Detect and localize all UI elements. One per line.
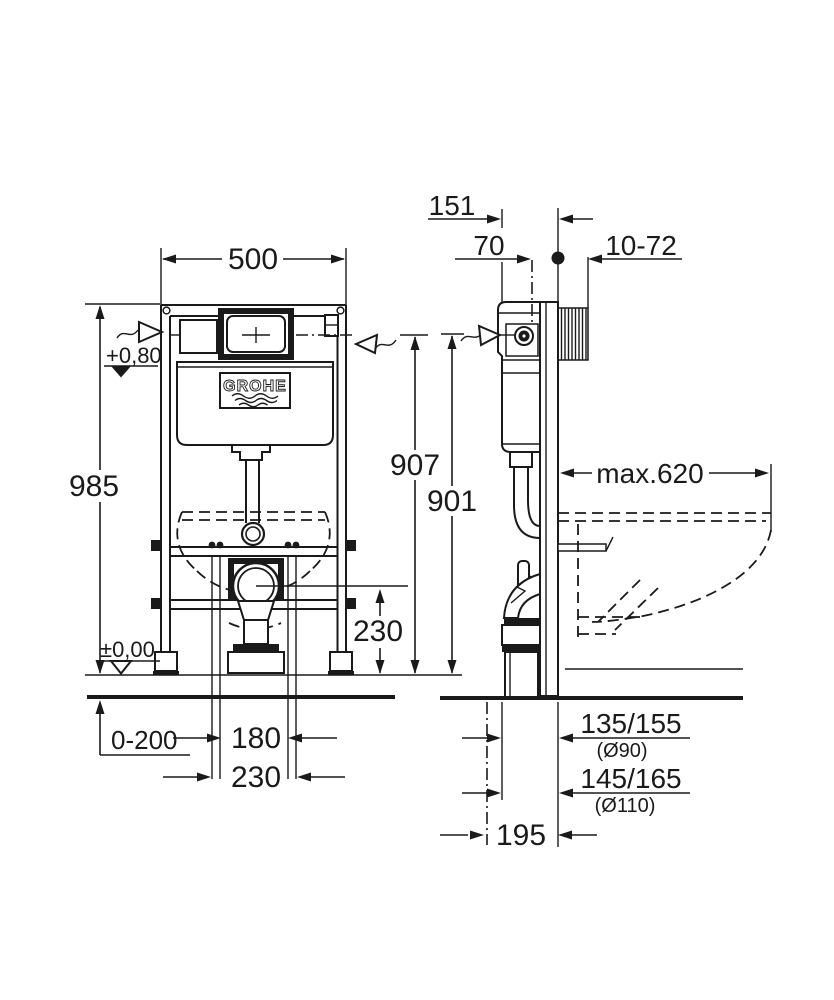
- dim-frame-width: 500: [228, 243, 278, 276]
- level-actuation-label: +0,80: [106, 343, 162, 368]
- dim-supply-depth: 70: [473, 230, 504, 261]
- dim-outlet-dia-110: (Ø110): [595, 795, 656, 817]
- flush-valve: [232, 445, 270, 460]
- outlet-funnel: [238, 601, 274, 620]
- side-view: [498, 208, 771, 697]
- level-mark-floor: ±0,00: [100, 637, 160, 674]
- dim-depth-top: 151: [429, 190, 476, 221]
- wall-hatch: [558, 308, 588, 360]
- actuation-wave-icon: [375, 340, 396, 349]
- dim-frame-height: 985: [69, 470, 119, 503]
- dim-outlet-pos-110: 145/165: [580, 763, 681, 794]
- brand-logo: GROHE: [220, 373, 290, 408]
- wall-anchor-rod: [558, 544, 606, 551]
- frame-corner-hole: [337, 307, 344, 314]
- technical-drawing-page: GROHE: [0, 0, 834, 1000]
- level-floor-label: ±0,00: [100, 637, 155, 662]
- brand-logo-text: GROHE: [223, 378, 287, 395]
- left-knockout-box: [180, 320, 217, 353]
- dim-foot-adjust: 0-200: [111, 725, 178, 755]
- frame-profile-side: [540, 302, 558, 696]
- dim-wall-thickness: 10-72: [605, 230, 677, 261]
- side-supply-arrow-icon: [479, 326, 500, 345]
- dim-fixing-inner: 180: [231, 722, 281, 755]
- wall-reference-dot: [552, 252, 565, 265]
- actuation-arrow-icon: [356, 335, 377, 353]
- dim-outlet-height: 230: [353, 615, 403, 648]
- front-view: GROHE: [151, 305, 408, 779]
- wc-bowl-outline-side: [558, 513, 771, 641]
- supply-arrow-icon: [139, 322, 162, 342]
- level-mark-actuation: +0,80: [104, 322, 162, 378]
- dim-outlet-offset: 195: [496, 819, 546, 852]
- dim-outlet-dia-90: (Ø90): [596, 740, 647, 762]
- dim-fixing-outer: 230: [231, 761, 281, 794]
- dim-height-supply: 907: [390, 449, 440, 482]
- dim-bowl-depth: max.620: [596, 458, 703, 489]
- frame-corner-hole: [163, 307, 170, 314]
- ground-lines: [85, 669, 743, 698]
- supply-wave-icon: [117, 330, 138, 338]
- installation-frame-drawing: GROHE: [0, 0, 834, 1000]
- dim-height-actuation: 901: [427, 485, 477, 518]
- dim-outlet-pos-90: 135/155: [580, 708, 681, 739]
